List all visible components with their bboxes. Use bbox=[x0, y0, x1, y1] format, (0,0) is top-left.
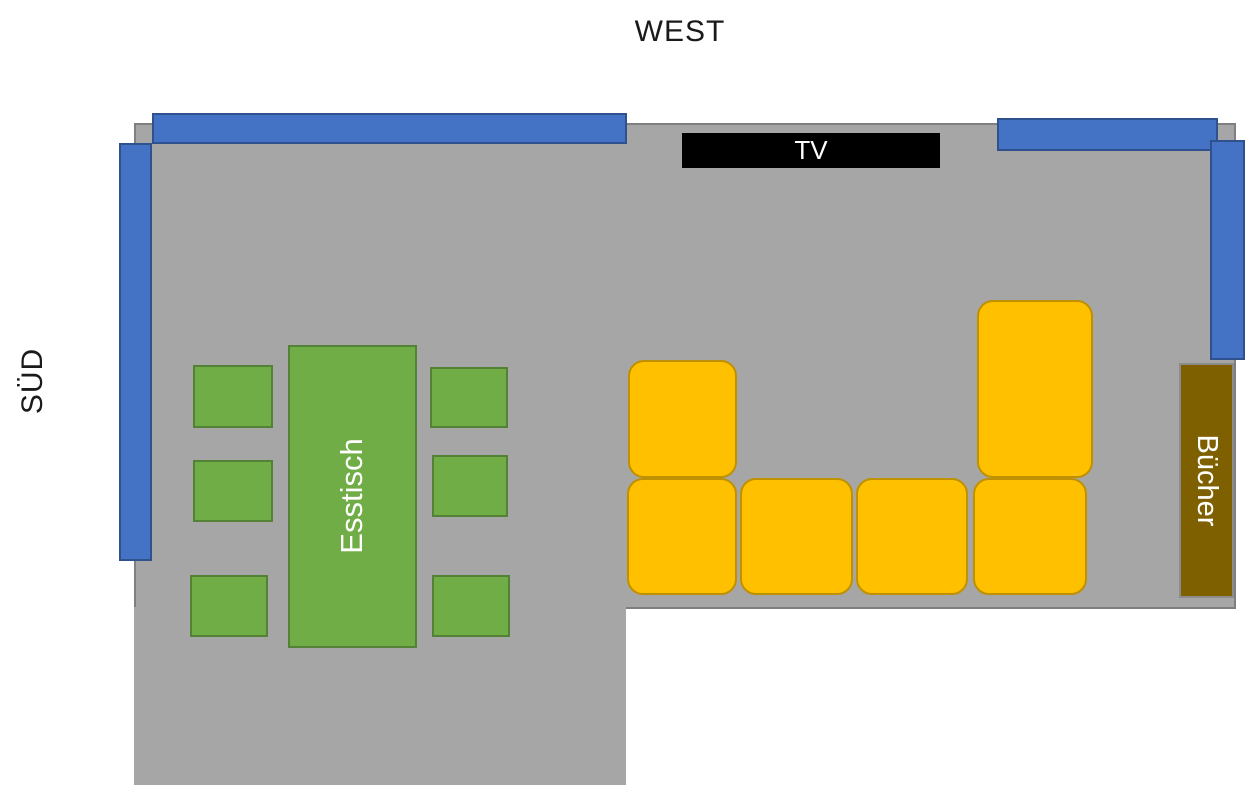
chair bbox=[193, 460, 273, 522]
window-top-left bbox=[152, 113, 627, 144]
sofa-back-left bbox=[628, 360, 737, 478]
bookshelf-label: Bücher bbox=[1186, 370, 1227, 591]
compass-label-west: WEST bbox=[530, 12, 830, 52]
sofa-seat bbox=[973, 478, 1087, 595]
dining-table-label: Esstisch bbox=[332, 356, 372, 636]
chair bbox=[190, 575, 268, 637]
chair bbox=[430, 367, 508, 428]
chair bbox=[193, 365, 273, 428]
sofa-back-right bbox=[977, 300, 1093, 478]
window-left bbox=[119, 143, 152, 561]
window-right bbox=[1210, 140, 1245, 360]
chair bbox=[432, 575, 510, 637]
sofa-seat bbox=[627, 478, 737, 595]
chair bbox=[432, 455, 508, 517]
tv: TV bbox=[682, 133, 940, 168]
sofa-seat bbox=[740, 478, 853, 595]
window-top-right bbox=[997, 118, 1218, 151]
sofa-seat bbox=[856, 478, 968, 595]
compass-label-south: SÜD bbox=[13, 301, 53, 461]
